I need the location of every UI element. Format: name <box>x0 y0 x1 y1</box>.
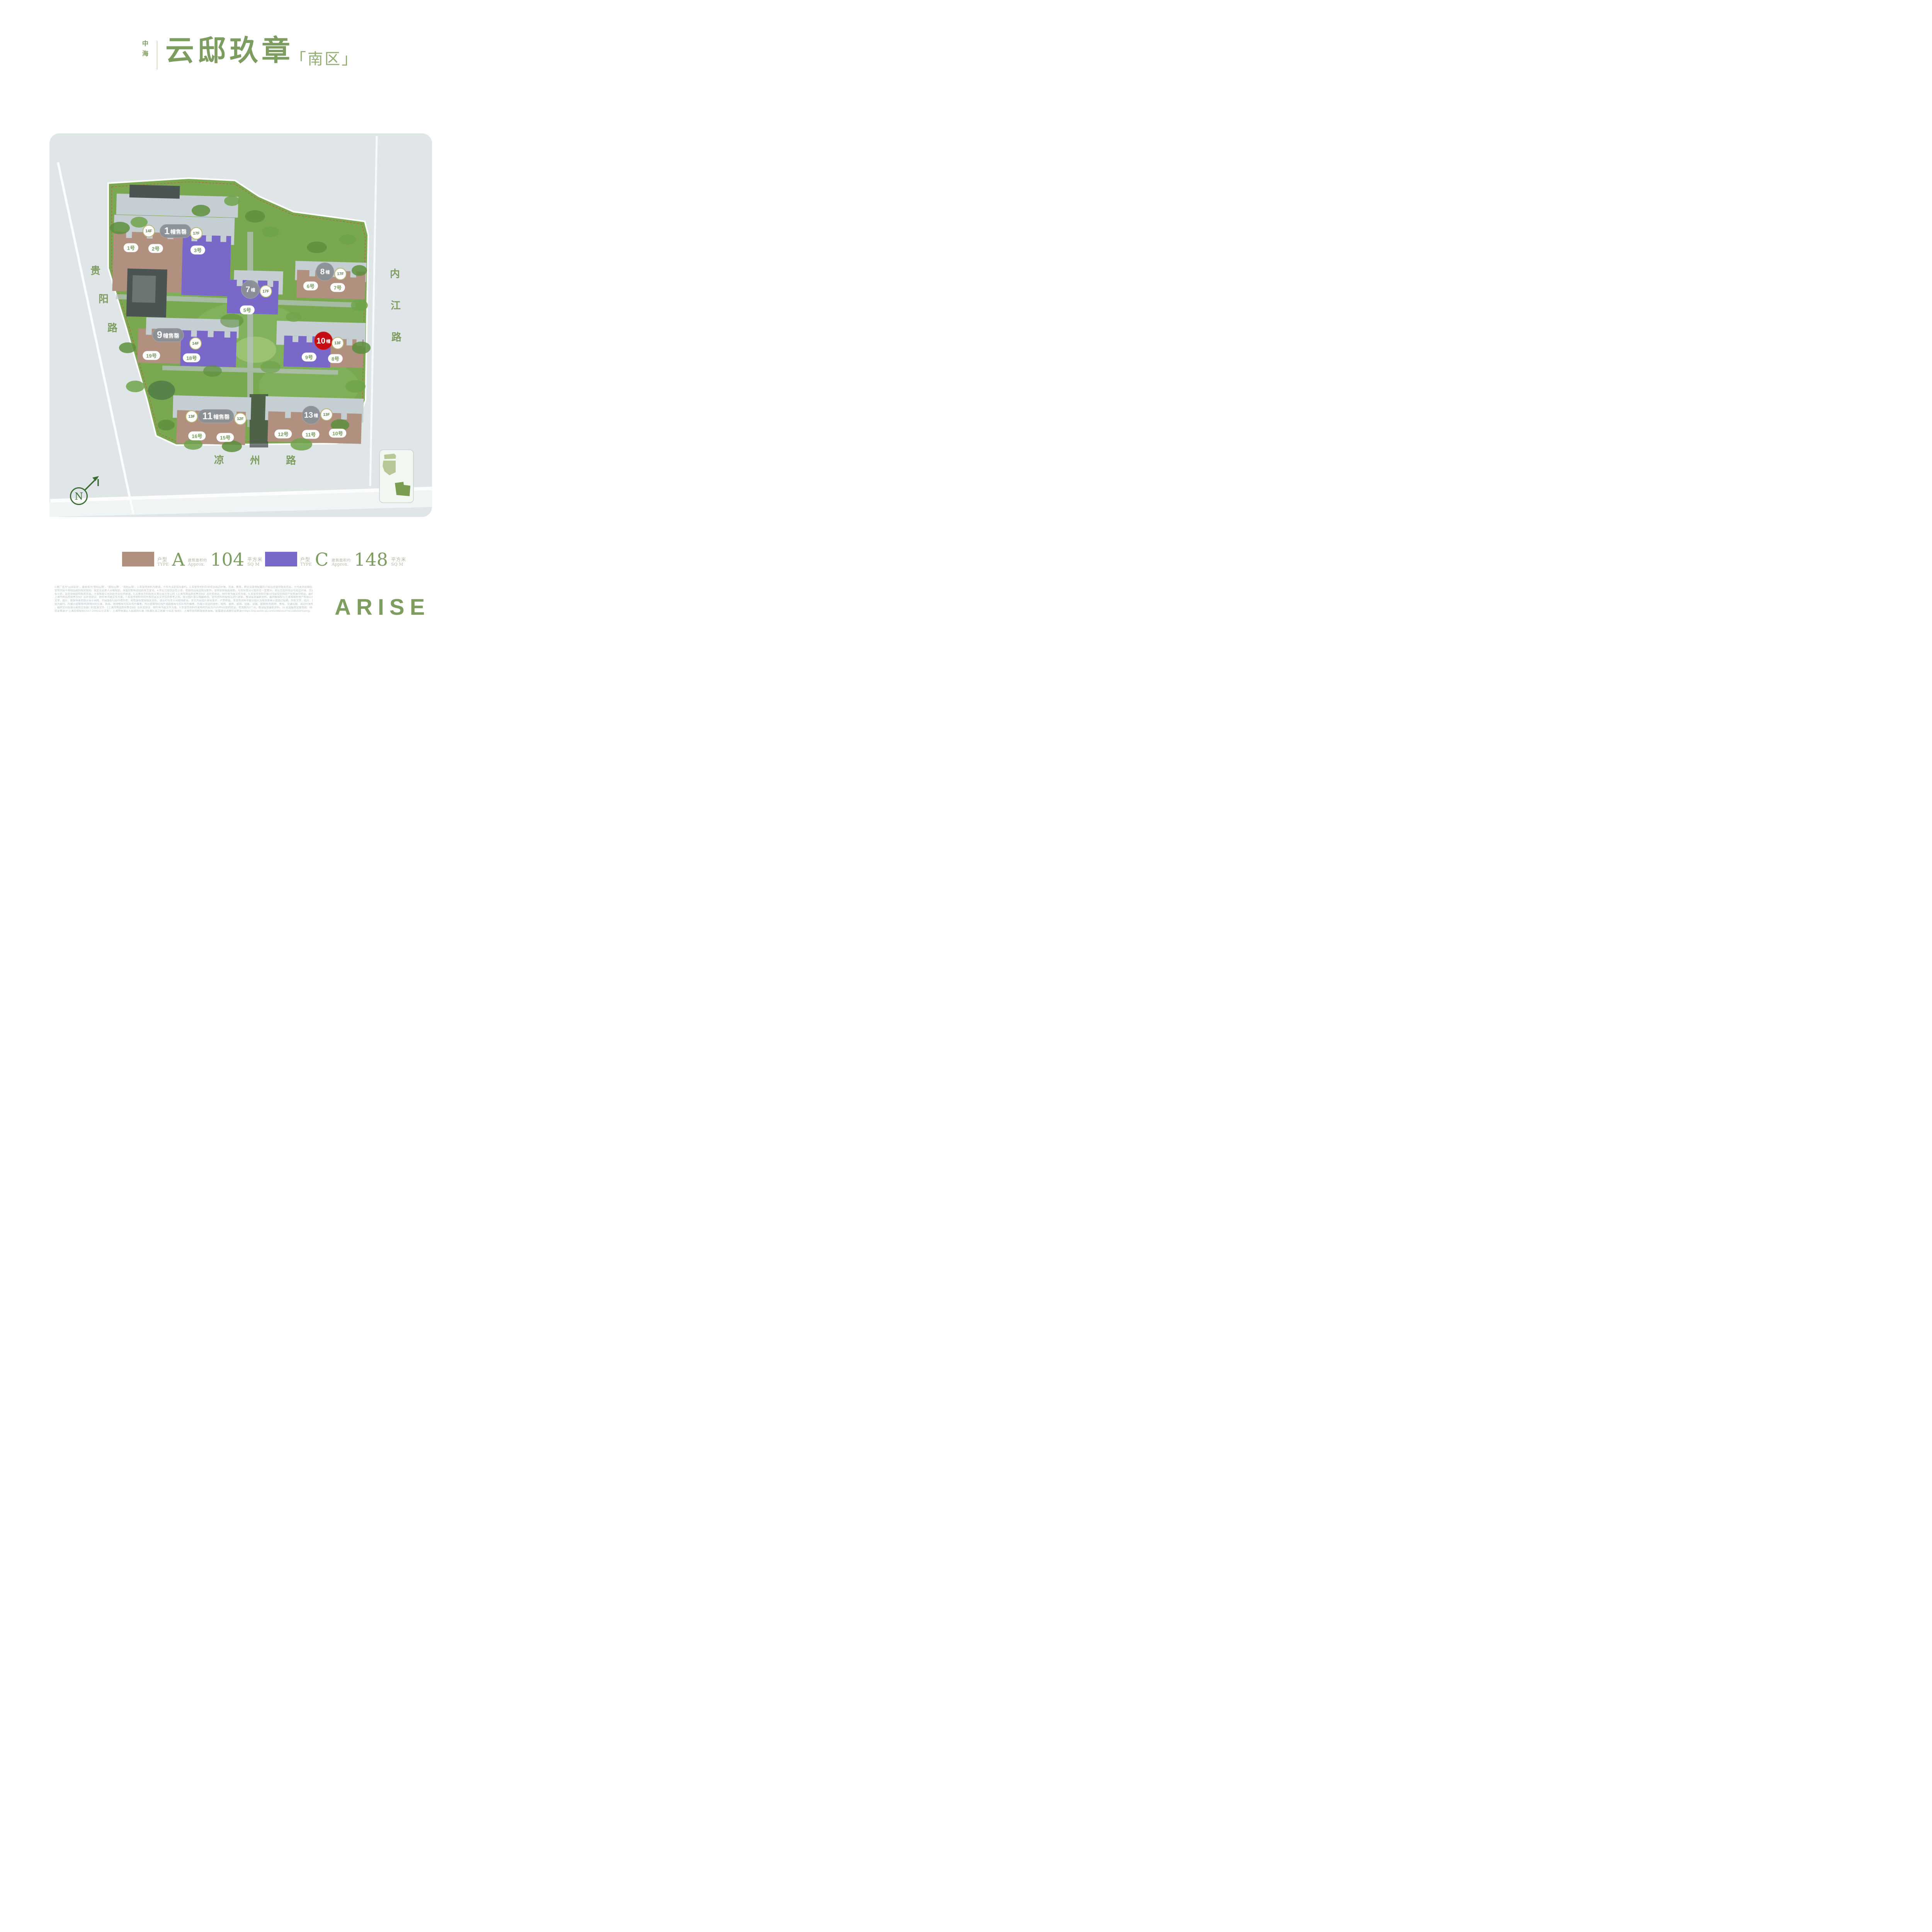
disclaimer-line-1: 1.推广名为“云邸玖章”，备案名为“悦阳云筑”、“波阳云筑”、“浩阳云筑”。2.… <box>54 586 313 589</box>
disclaimer-text: 1.推广名为“云邸玖章”，备案名为“悦阳云筑”、“波阳云筑”、“浩阳云筑”。2.… <box>54 586 313 613</box>
poster-page: 中海 云邸玖章 「南区」 1幢售罄14F17F1号2号3号7幢17F5号8幢17… <box>0 0 483 656</box>
legend-area-value-a: 104 <box>210 552 244 567</box>
legend-unit-en: SQ M <box>391 562 406 567</box>
legend-type-c: 户型TYPE C 建筑面积约Approx. 148 平方米SQ M <box>265 548 406 567</box>
district-label: 「南区」 <box>291 46 359 69</box>
disclaimer-line-6: 视为要约。所展示建筑物/构筑物间的位置、距离、地理格局与实际有所偏差。所示建筑物… <box>54 603 313 606</box>
svg-text:N: N <box>75 491 83 502</box>
legend-type-en: TYPE <box>157 562 169 567</box>
disclaimer-line-5: 文字、图片、数据等素材部分源于网络，内容版权归原作者所有；如有版权使用相关责权，… <box>54 599 313 603</box>
brand-logo: 中海 <box>140 40 149 60</box>
disclaimer-line-4: 上海市商品房预售合同》及补充协议、附件等书面文件为准。7.本宣传材料中的所有信息… <box>54 596 313 599</box>
disclaimer-line-2: 宣传内容不排除因政府相关规划、规定及出卖人分期规划、未能控制等原因而发生变化。4… <box>54 589 313 593</box>
legend-area-value-c: 148 <box>354 552 388 567</box>
legend-type-code-c: C <box>315 552 328 567</box>
legend-unit-label: 平方米 <box>247 557 262 563</box>
legend-area-en: Approx. <box>332 562 351 567</box>
legend-area-en: Approx. <box>188 562 207 567</box>
legend-type-en: TYPE <box>300 562 312 567</box>
legend-unit-en: SQ M <box>247 562 262 567</box>
arise-logo: ARISE <box>335 594 430 620</box>
legend-type-label: 户型 <box>300 557 312 563</box>
project-name: 云邸玖章 <box>165 36 294 65</box>
legend-type-a: 户型TYPE A 建筑面积约Approx. 104 平方米SQ M <box>122 548 262 567</box>
legend-swatch-type-a <box>122 552 154 566</box>
title-divider <box>157 41 157 70</box>
north-arrow-icon: N <box>65 474 104 510</box>
disclaimer-line-7: ，最终交付标准以政府主管部门的批准文件、《上海市商品房预售合同》及补充协议、附件… <box>54 606 313 610</box>
legend-type-code-a: A <box>172 552 185 567</box>
legend-type-label: 户型 <box>157 557 169 563</box>
key-map-inset <box>379 449 414 503</box>
legend-unit-label: 平方米 <box>391 557 406 563</box>
disclaimer-line-8: 信息来源于“上海总体规划(2017-2035)公示文本”、上海市杨浦区人民政府印… <box>54 610 313 613</box>
legend-swatch-type-c <box>265 552 297 566</box>
disclaimer-line-3: 系示意，旨在协助提供相关信息，不意味着公司对此作出任何承诺。5.买卖双方的权利义… <box>54 593 313 596</box>
